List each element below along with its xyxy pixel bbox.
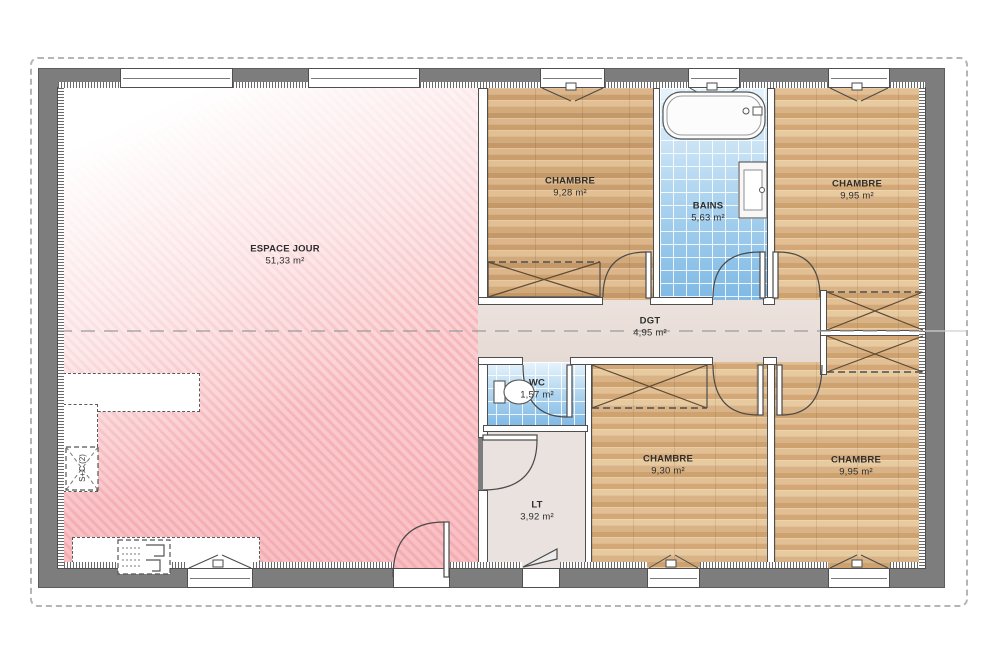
window [647, 568, 700, 588]
insulation [253, 562, 393, 568]
room-area: 51,33 m² [250, 256, 320, 268]
room-name: WC [529, 378, 545, 389]
room-label-wc: WC 1,57 m² [520, 378, 554, 403]
room-name: CHAMBRE [545, 176, 595, 187]
wall [483, 425, 588, 432]
wall [650, 297, 713, 305]
room-lt-floor [483, 428, 588, 568]
window [540, 68, 605, 88]
room-label-bains: BAINS 5,63 m² [691, 201, 725, 226]
insulation [740, 82, 828, 88]
room-label-chambre-2: CHAMBRE 9,95 m² [832, 179, 882, 204]
room-label-chambre-1: CHAMBRE 9,28 m² [545, 176, 595, 201]
room-label-espace-jour: ESPACE JOUR 51,33 m² [250, 244, 320, 269]
wall [478, 490, 488, 568]
room-area: 3,92 m² [520, 512, 554, 524]
insulation [450, 562, 522, 568]
wall [763, 297, 775, 305]
wall [570, 357, 713, 365]
insulation [919, 88, 925, 568]
room-bains-floor [660, 88, 767, 305]
room-area: 1,57 m² [520, 390, 554, 402]
insulation [605, 82, 688, 88]
insulation [420, 82, 540, 88]
room-espace-jour-floor [58, 88, 478, 568]
window [688, 68, 740, 88]
room-label-lt: LT 3,92 m² [520, 500, 554, 525]
room-name: CHAMBRE [832, 179, 882, 190]
room-area: 5,63 m² [691, 213, 725, 225]
room-area: 9,95 m² [832, 191, 882, 203]
wall [763, 357, 777, 365]
floor-plan: S+C (2) ESPACE JOUR 51,33 m² CHAMBRE 9,2… [0, 0, 1000, 650]
insulation [560, 562, 647, 568]
room-name: ESPACE JOUR [250, 244, 320, 255]
room-name: CHAMBRE [643, 454, 693, 465]
wall [767, 357, 775, 568]
room-name: LT [531, 500, 542, 511]
window [120, 68, 233, 88]
insulation [58, 88, 64, 568]
room-label-chambre-3: CHAMBRE 9,30 m² [643, 454, 693, 479]
wall [478, 88, 488, 305]
insulation [233, 82, 308, 88]
room-area: 9,28 m² [545, 188, 595, 200]
wall [585, 357, 592, 568]
room-area: 9,95 m² [831, 467, 881, 479]
insulation [58, 562, 187, 568]
room-area: 9,30 m² [643, 466, 693, 478]
window [828, 568, 890, 588]
wall [478, 357, 523, 365]
room-name: DGT [640, 316, 661, 327]
kitchen-counter-column [63, 404, 98, 492]
wall [820, 330, 925, 336]
lt-exterior-door-opening [522, 568, 560, 588]
window [187, 568, 253, 588]
insulation [700, 562, 828, 568]
entrance-door-opening [393, 568, 450, 588]
room-label-chambre-4: CHAMBRE 9,95 m² [831, 455, 881, 480]
insulation [58, 82, 120, 88]
room-area: 4,95 m² [633, 328, 667, 340]
wall [653, 88, 660, 305]
window [308, 68, 420, 88]
room-label-dgt: DGT 4,95 m² [633, 316, 667, 341]
wall [478, 297, 603, 305]
room-name: BAINS [693, 201, 724, 212]
wall [767, 88, 775, 305]
room-name: CHAMBRE [831, 455, 881, 466]
window [828, 68, 890, 88]
